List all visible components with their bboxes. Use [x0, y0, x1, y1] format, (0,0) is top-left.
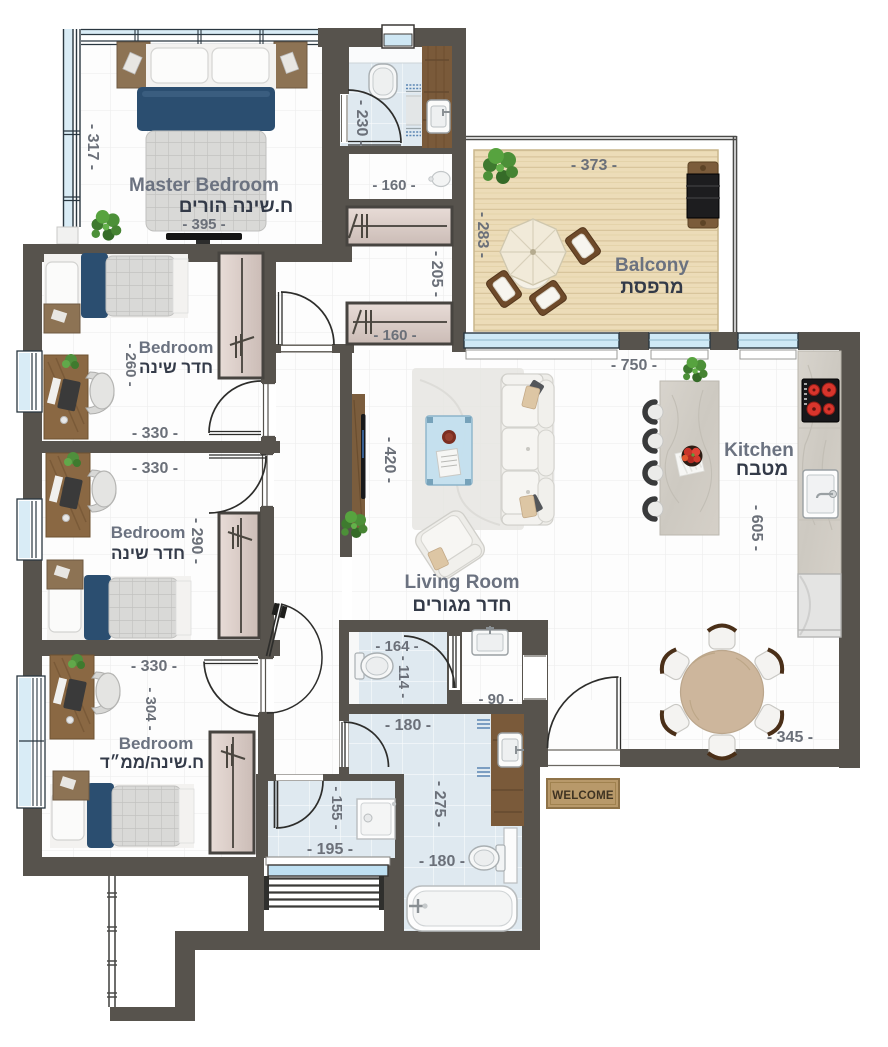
svg-text:- 180 -: - 180 -: [385, 717, 431, 734]
svg-text:- 160 -: - 160 -: [373, 327, 416, 344]
svg-text:מטבח: מטבח: [736, 459, 788, 480]
svg-text:- 230 -: - 230 -: [353, 100, 370, 146]
svg-text:Living Room: Living Room: [404, 572, 519, 593]
svg-text:חדר מגורים: חדר מגורים: [412, 595, 511, 616]
svg-text:- 373 -: - 373 -: [571, 157, 617, 174]
svg-text:- 317 -: - 317 -: [84, 124, 101, 170]
svg-text:- 395 -: - 395 -: [182, 216, 225, 233]
svg-text:- 750 -: - 750 -: [611, 357, 657, 374]
svg-text:Balcony: Balcony: [615, 255, 689, 276]
svg-text:- 90 -: - 90 -: [478, 691, 513, 708]
svg-text:- 304 -: - 304 -: [142, 687, 159, 730]
svg-text:- 195 -: - 195 -: [307, 841, 353, 858]
svg-text:- 205 -: - 205 -: [428, 251, 445, 297]
svg-text:- 155 -: - 155 -: [328, 786, 345, 829]
svg-text:ח.שינה הורים: ח.שינה הורים: [179, 196, 293, 217]
svg-text:מרפסת: מרפסת: [620, 277, 683, 298]
svg-text:Kitchen: Kitchen: [724, 440, 794, 461]
svg-text:- 330 -: - 330 -: [132, 425, 178, 442]
svg-text:- 114 -: - 114 -: [395, 656, 412, 699]
svg-text:- 290 -: - 290 -: [188, 518, 205, 564]
svg-text:Bedroom: Bedroom: [119, 734, 194, 753]
svg-text:חדר שינה: חדר שינה: [111, 544, 185, 563]
svg-text:- 420 -: - 420 -: [381, 437, 398, 483]
svg-text:Bedroom: Bedroom: [139, 338, 214, 357]
svg-text:ח.שינה/ממ״ד: ח.שינה/ממ״ד: [100, 753, 204, 772]
svg-text:WELCOME: WELCOME: [552, 790, 614, 802]
svg-text:- 283 -: - 283 -: [474, 212, 491, 258]
svg-text:- 180 -: - 180 -: [419, 853, 465, 870]
svg-text:- 345 -: - 345 -: [767, 729, 813, 746]
svg-text:- 260 -: - 260 -: [122, 343, 139, 386]
svg-text:חדר שינה: חדר שינה: [139, 358, 213, 377]
svg-text:- 164 -: - 164 -: [375, 638, 418, 655]
svg-text:- 275 -: - 275 -: [431, 781, 448, 827]
svg-text:- 330 -: - 330 -: [131, 658, 177, 675]
svg-text:- 330 -: - 330 -: [132, 460, 178, 477]
svg-text:- 160 -: - 160 -: [372, 177, 415, 194]
svg-text:Bedroom: Bedroom: [111, 523, 186, 542]
svg-text:Master Bedroom: Master Bedroom: [129, 175, 279, 196]
svg-text:- 605 -: - 605 -: [748, 505, 765, 551]
